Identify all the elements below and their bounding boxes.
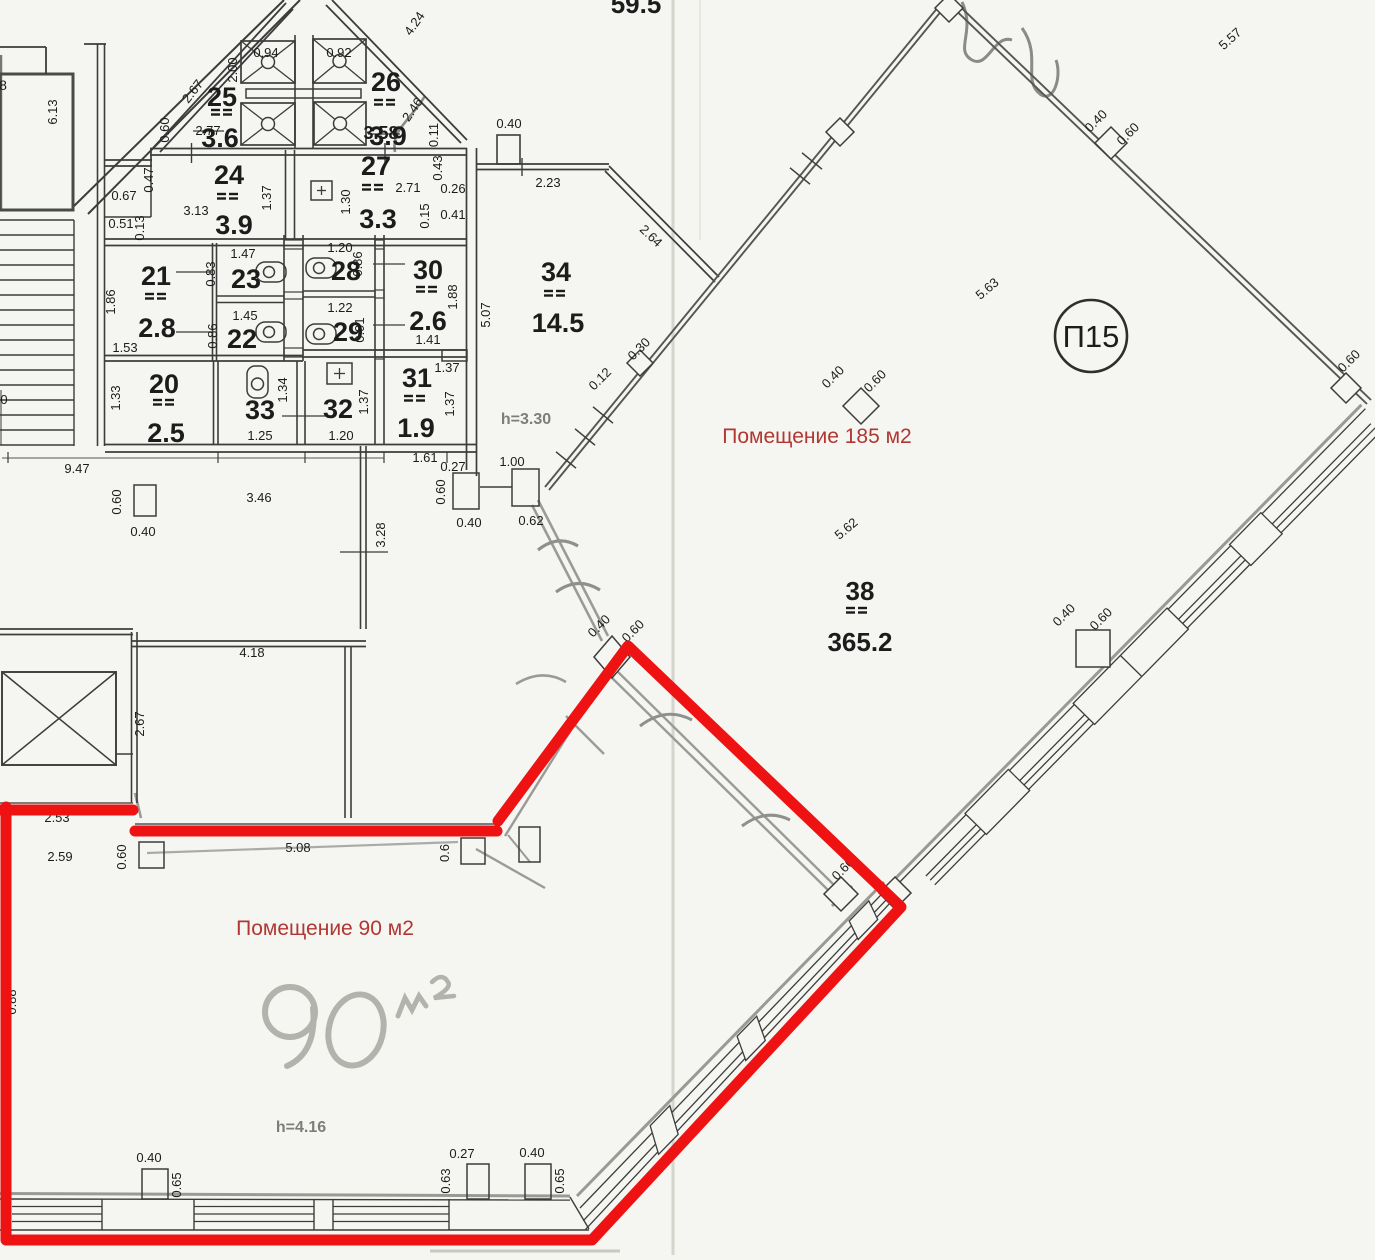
- svg-text:Помещение 90 м2: Помещение 90 м2: [236, 917, 414, 940]
- svg-text:0.86: 0.86: [350, 251, 365, 276]
- svg-text:0.26: 0.26: [440, 181, 465, 196]
- svg-text:2.00: 2.00: [225, 57, 240, 82]
- svg-text:59.5: 59.5: [611, 0, 662, 19]
- svg-text:0.40: 0.40: [519, 1145, 544, 1160]
- svg-text:9.47: 9.47: [64, 461, 89, 476]
- svg-text:1.22: 1.22: [327, 300, 352, 315]
- svg-text:0.11: 0.11: [426, 123, 441, 147]
- svg-text:6.13: 6.13: [45, 99, 60, 124]
- svg-text:0.65: 0.65: [169, 1172, 184, 1197]
- svg-text:2.8: 2.8: [138, 313, 176, 343]
- svg-text:14.5: 14.5: [532, 308, 585, 338]
- svg-text:h=4.16: h=4.16: [276, 1119, 326, 1136]
- svg-text:1.47: 1.47: [230, 246, 255, 261]
- svg-text:1.25: 1.25: [247, 428, 272, 443]
- svg-text:2.67: 2.67: [132, 711, 147, 736]
- svg-text:1.45: 1.45: [232, 308, 257, 323]
- svg-text:31: 31: [402, 363, 432, 393]
- svg-text:2.59: 2.59: [47, 849, 72, 864]
- svg-text:0.27: 0.27: [440, 459, 465, 474]
- svg-text:0.86: 0.86: [205, 323, 220, 348]
- svg-text:3.46: 3.46: [246, 490, 271, 505]
- svg-text:5.07: 5.07: [478, 302, 493, 327]
- svg-text:3.9: 3.9: [215, 210, 253, 240]
- svg-text:1.34: 1.34: [275, 377, 290, 402]
- svg-text:33: 33: [245, 395, 275, 425]
- svg-text:8: 8: [0, 77, 7, 93]
- svg-text:3.13: 3.13: [183, 203, 208, 218]
- svg-text:0.83: 0.83: [203, 261, 218, 286]
- svg-text:3.58: 3.58: [363, 123, 398, 143]
- svg-text:1.41: 1.41: [415, 332, 440, 347]
- svg-text:3.28: 3.28: [373, 522, 388, 547]
- svg-text:23: 23: [231, 264, 261, 294]
- svg-text:1.20: 1.20: [328, 428, 353, 443]
- svg-text:22: 22: [227, 324, 257, 354]
- svg-text:30: 30: [413, 255, 443, 285]
- svg-text:0.43: 0.43: [430, 155, 445, 180]
- svg-text:25: 25: [207, 82, 237, 112]
- svg-text:0.60: 0.60: [109, 489, 124, 514]
- svg-text:21: 21: [141, 261, 171, 291]
- svg-text:h=3.30: h=3.30: [501, 411, 551, 428]
- svg-text:1.86: 1.86: [103, 289, 118, 314]
- svg-text:2.5: 2.5: [147, 418, 185, 448]
- svg-text:0.62: 0.62: [518, 513, 543, 528]
- svg-text:0.60: 0.60: [433, 479, 448, 504]
- svg-text:20: 20: [149, 369, 179, 399]
- svg-text:0.60: 0.60: [114, 844, 129, 869]
- svg-text:32: 32: [323, 394, 353, 424]
- svg-text:0.63: 0.63: [438, 1168, 453, 1193]
- svg-text:27: 27: [361, 151, 391, 181]
- svg-text:1.37: 1.37: [434, 360, 459, 375]
- svg-text:4.18: 4.18: [239, 645, 264, 660]
- svg-text:5.08: 5.08: [285, 840, 310, 855]
- svg-text:0.51: 0.51: [108, 216, 133, 231]
- svg-text:1.37: 1.37: [356, 389, 371, 414]
- svg-text:0.67: 0.67: [111, 188, 136, 203]
- svg-text:0.60: 0.60: [157, 117, 172, 142]
- svg-text:1.30: 1.30: [338, 189, 353, 214]
- svg-text:1.37: 1.37: [259, 185, 274, 210]
- svg-text:Помещение 185 м2: Помещение 185 м2: [722, 425, 911, 448]
- svg-text:1.37: 1.37: [442, 391, 457, 416]
- svg-text:0.6: 0.6: [437, 844, 452, 862]
- svg-text:2.23: 2.23: [535, 175, 560, 190]
- svg-text:0.27: 0.27: [449, 1146, 474, 1161]
- svg-text:0.13: 0.13: [132, 215, 147, 240]
- svg-text:24: 24: [214, 160, 244, 190]
- svg-text:365.2: 365.2: [827, 627, 892, 657]
- svg-text:0.40: 0.40: [136, 1150, 161, 1165]
- svg-text:26: 26: [371, 67, 401, 97]
- svg-text:0.40: 0.40: [130, 524, 155, 539]
- svg-text:2.77: 2.77: [195, 123, 220, 138]
- svg-text:1.20: 1.20: [327, 240, 352, 255]
- svg-text:1.33: 1.33: [108, 385, 123, 410]
- svg-text:1.9: 1.9: [397, 413, 435, 443]
- svg-text:0: 0: [0, 392, 7, 407]
- svg-text:0.92: 0.92: [326, 45, 351, 60]
- svg-text:1.53: 1.53: [112, 340, 137, 355]
- svg-text:0.15: 0.15: [417, 203, 432, 228]
- svg-text:0.65: 0.65: [552, 1168, 567, 1193]
- svg-text:П15: П15: [1063, 319, 1120, 354]
- svg-text:0.40: 0.40: [456, 515, 481, 530]
- svg-text:0.47: 0.47: [141, 167, 156, 192]
- svg-text:0.94: 0.94: [253, 45, 278, 60]
- svg-text:0.91: 0.91: [352, 317, 367, 342]
- svg-text:3.3: 3.3: [359, 204, 397, 234]
- svg-text:1.61: 1.61: [412, 450, 437, 465]
- svg-text:34: 34: [541, 257, 571, 287]
- svg-text:2.71: 2.71: [395, 180, 420, 195]
- svg-text:38: 38: [846, 576, 875, 606]
- svg-text:1.00: 1.00: [499, 454, 524, 469]
- svg-text:0.41: 0.41: [440, 207, 465, 222]
- svg-text:0.40: 0.40: [496, 116, 521, 131]
- svg-text:1.88: 1.88: [445, 284, 460, 309]
